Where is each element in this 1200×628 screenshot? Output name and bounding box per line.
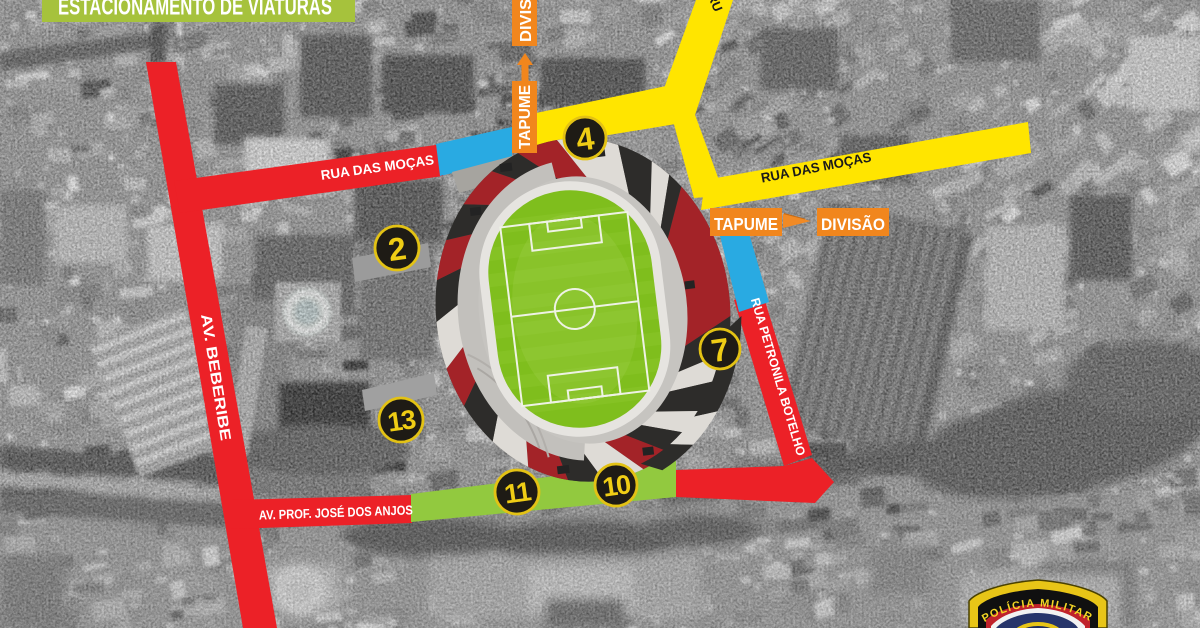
svg-text:TAPUME: TAPUME (714, 214, 778, 234)
svg-text:DIVISÃO: DIVISÃO (515, 0, 535, 42)
svg-text:TAPUME: TAPUME (517, 85, 534, 149)
svg-text:DIVISÃO: DIVISÃO (821, 214, 885, 234)
svg-text:ESTACIONAMENTO DE VIATURAS: ESTACIONAMENTO DE VIATURAS (58, 0, 332, 21)
svg-text:10: 10 (601, 469, 632, 503)
